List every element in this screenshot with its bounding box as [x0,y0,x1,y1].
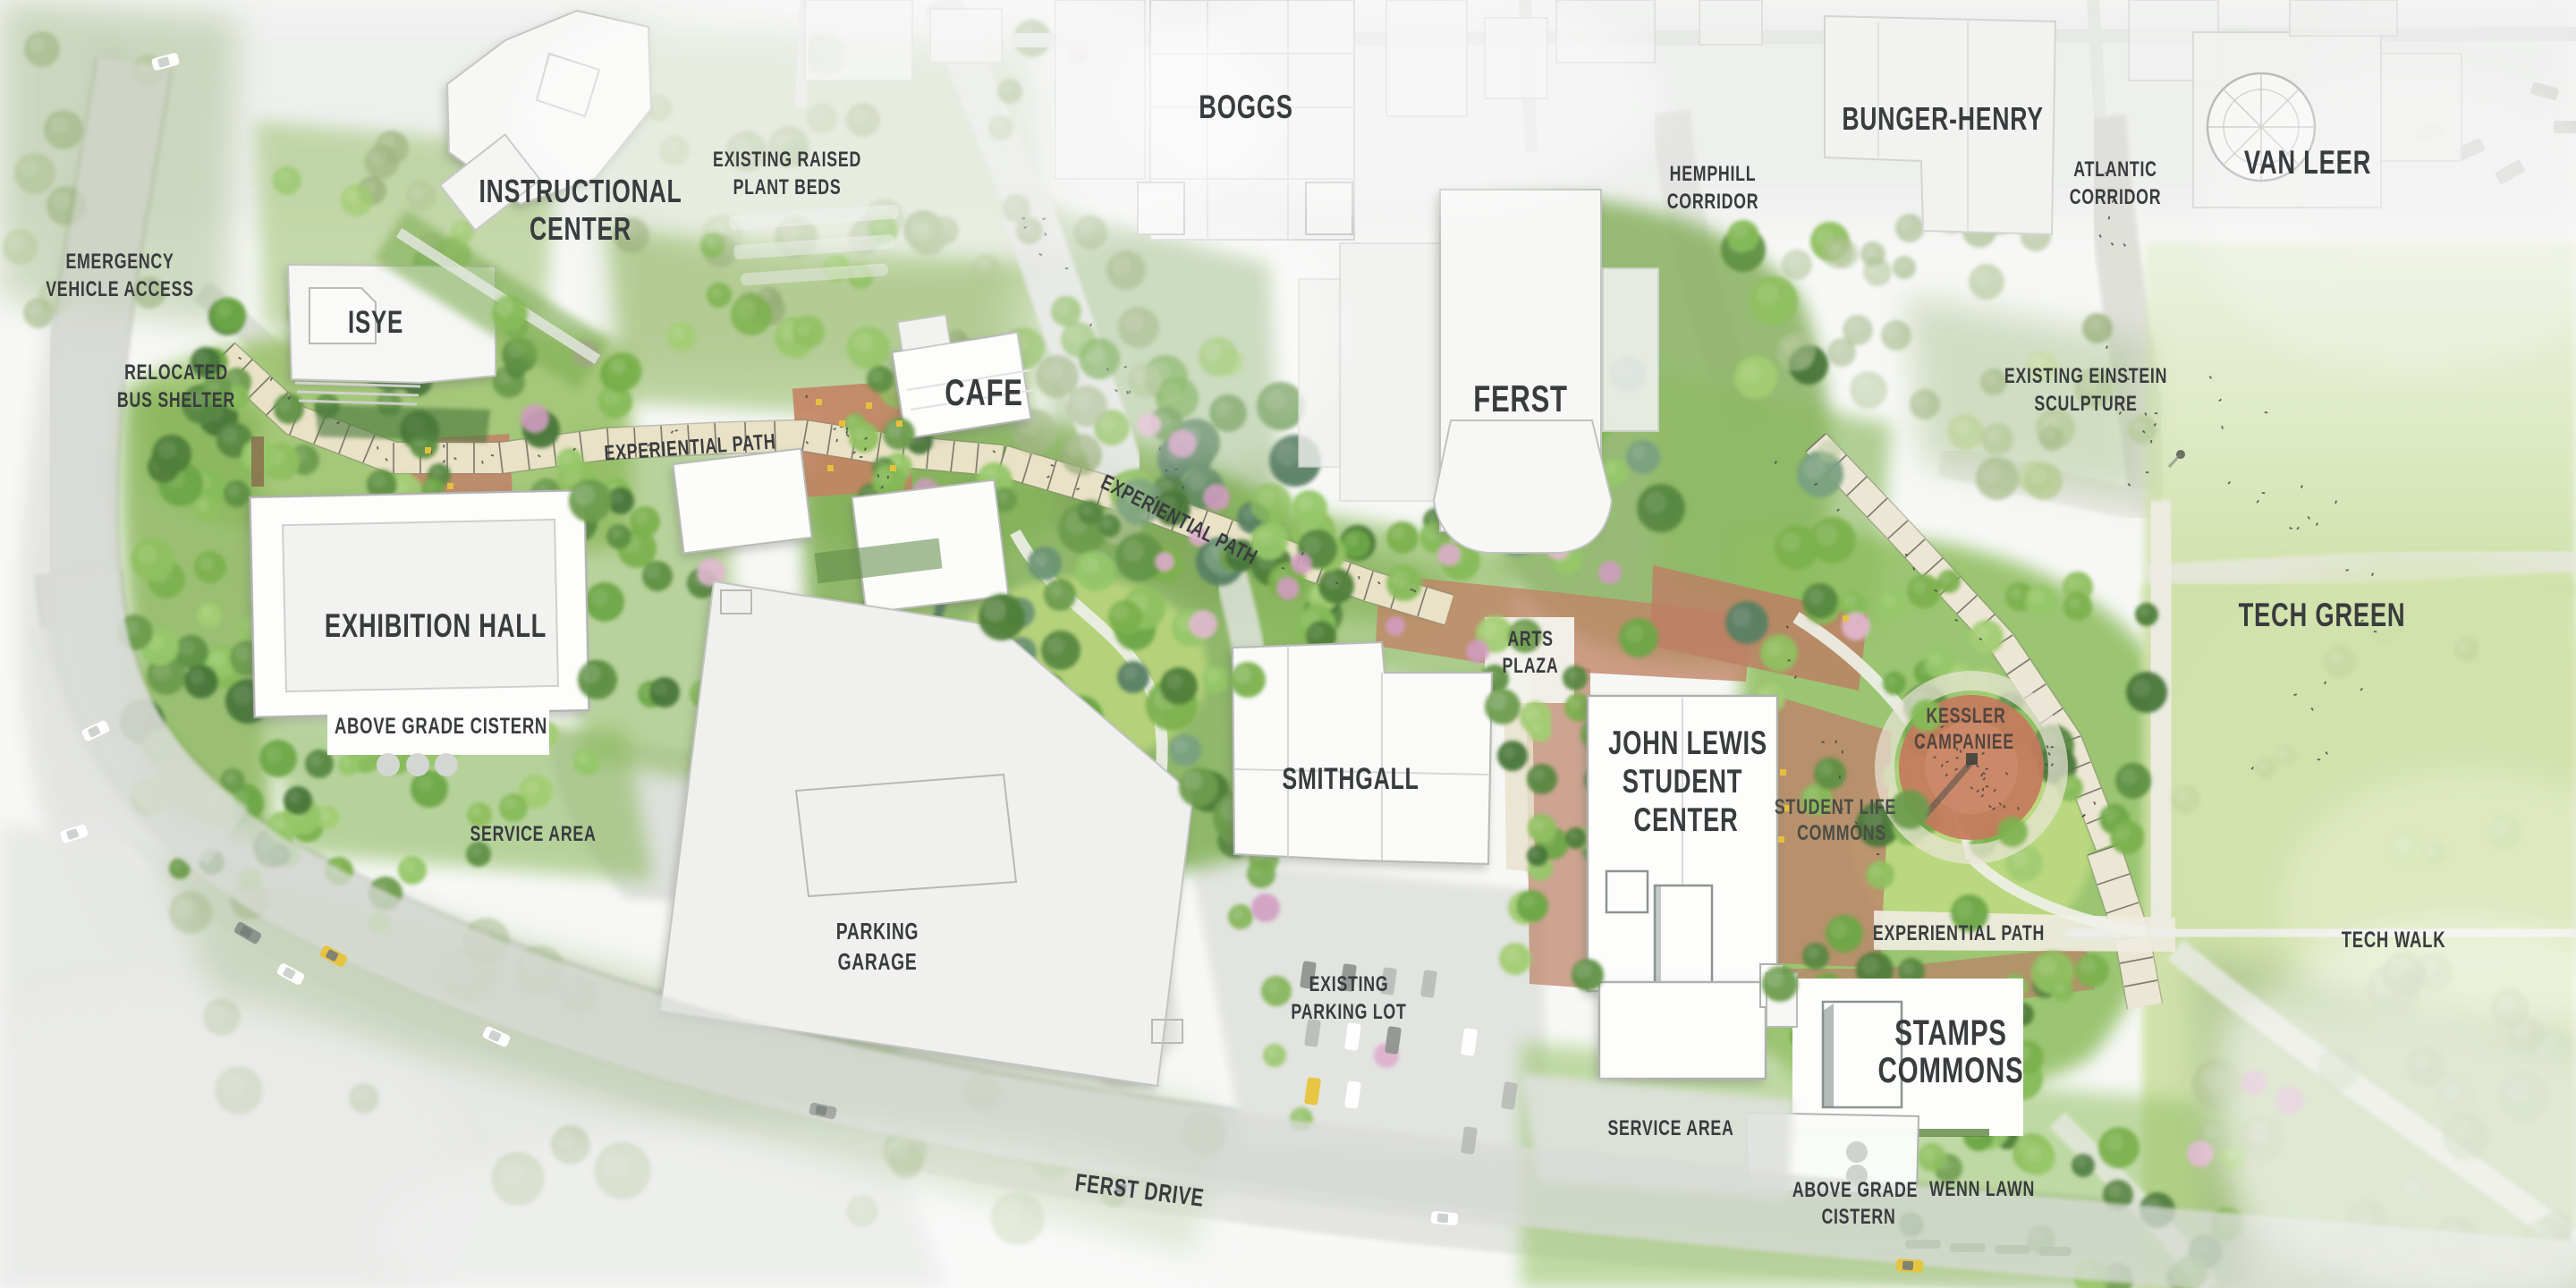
svg-text:PARKING: PARKING [836,918,919,945]
svg-text:STAMPS: STAMPS [1894,1013,2007,1053]
svg-text:EXPERIENTIAL PATH: EXPERIENTIAL PATH [1873,922,2045,945]
svg-text:CORRIDOR: CORRIDOR [2070,186,2162,209]
svg-text:SMITHGALL: SMITHGALL [1282,762,1419,796]
svg-text:CAFE: CAFE [945,371,1023,413]
svg-text:RELOCATED: RELOCATED [124,361,228,385]
svg-text:CISTERN: CISTERN [1821,1206,1895,1229]
svg-text:TECH GREEN: TECH GREEN [2239,597,2406,633]
svg-text:SERVICE AREA: SERVICE AREA [1607,1117,1733,1140]
svg-text:BUS SHELTER: BUS SHELTER [117,389,235,412]
svg-text:CORRIDOR: CORRIDOR [1667,191,1759,214]
svg-text:COMMONS: COMMONS [1797,822,1886,845]
svg-text:PLANT BEDS: PLANT BEDS [733,176,842,199]
svg-text:EXISTING EINSTEIN: EXISTING EINSTEIN [2004,365,2167,388]
svg-text:WENN LAWN: WENN LAWN [1929,1178,2035,1201]
svg-text:GARAGE: GARAGE [838,948,918,975]
svg-text:CENTER: CENTER [1634,801,1739,838]
svg-text:ARTS: ARTS [1507,628,1553,651]
svg-text:VEHICLE ACCESS: VEHICLE ACCESS [46,278,194,301]
svg-text:STUDENT LIFE: STUDENT LIFE [1775,796,1896,819]
svg-text:SCULPTURE: SCULPTURE [2034,393,2137,416]
svg-text:VAN LEER: VAN LEER [2244,144,2371,181]
svg-text:ABOVE GRADE: ABOVE GRADE [1792,1179,1918,1202]
svg-text:EXHIBITION HALL: EXHIBITION HALL [325,607,547,644]
svg-text:ATLANTIC: ATLANTIC [2073,158,2157,182]
svg-text:ABOVE GRADE CISTERN: ABOVE GRADE CISTERN [335,713,547,738]
svg-text:INSTRUCTIONAL: INSTRUCTIONAL [479,173,682,209]
svg-text:EMERGENCY: EMERGENCY [65,250,174,274]
svg-text:SERVICE AREA: SERVICE AREA [470,823,596,846]
svg-text:TECH WALK: TECH WALK [2342,927,2446,952]
svg-text:BOGGS: BOGGS [1199,89,1293,125]
svg-text:BUNGER-HENRY: BUNGER-HENRY [1842,100,2043,137]
svg-text:HEMPHILL: HEMPHILL [1670,163,1757,186]
svg-text:CAMPANIEE: CAMPANIEE [1914,731,2014,754]
svg-text:FERST: FERST [1473,377,1568,419]
svg-text:STUDENT: STUDENT [1623,763,1742,800]
svg-text:EXISTING: EXISTING [1309,973,1389,996]
svg-text:CENTER: CENTER [530,210,631,247]
svg-text:EXISTING RAISED: EXISTING RAISED [713,148,861,172]
svg-text:PARKING LOT: PARKING LOT [1291,1001,1406,1024]
svg-text:ISYE: ISYE [348,304,403,340]
svg-text:KESSLER: KESSLER [1926,705,2005,728]
svg-text:PLAZA: PLAZA [1503,655,1559,678]
svg-text:COMMONS: COMMONS [1878,1051,2024,1090]
svg-text:JOHN LEWIS: JOHN LEWIS [1608,724,1767,761]
